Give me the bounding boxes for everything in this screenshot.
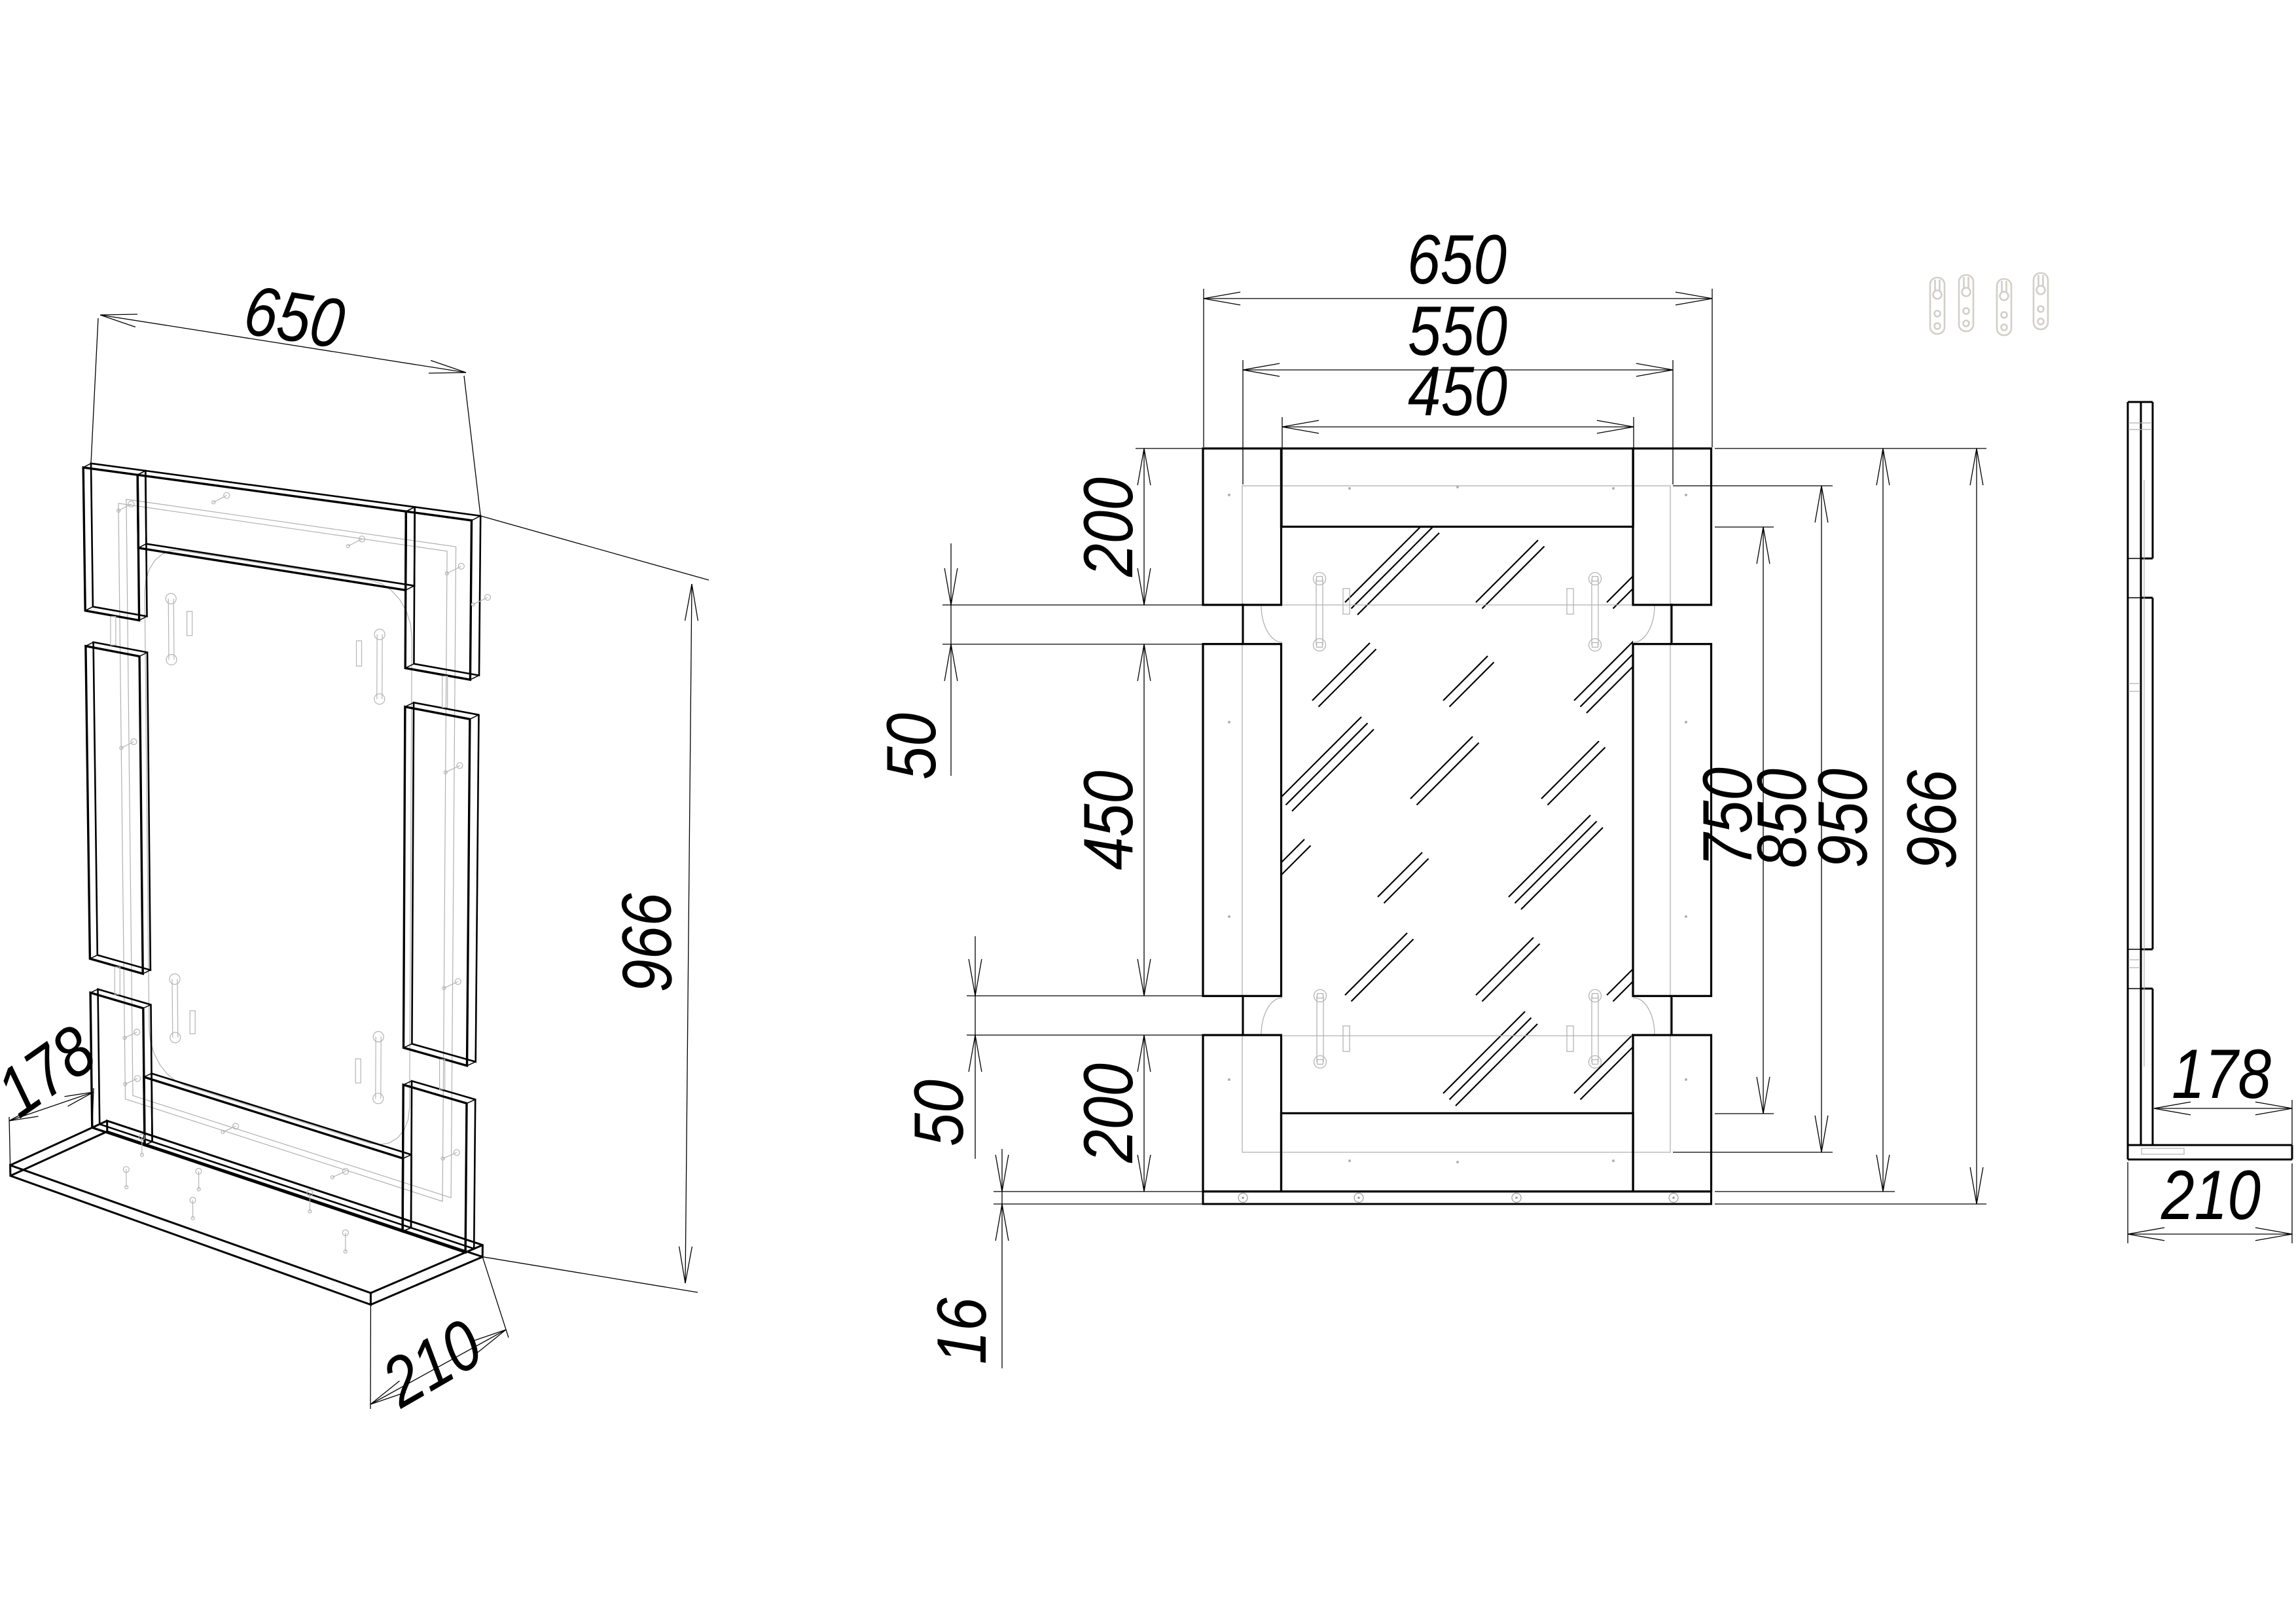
svg-text:950: 950 <box>1803 769 1882 868</box>
svg-text:178: 178 <box>2172 1034 2271 1113</box>
svg-text:450: 450 <box>1069 771 1147 870</box>
svg-text:450: 450 <box>1408 352 1507 430</box>
svg-text:200: 200 <box>1069 1063 1147 1163</box>
svg-text:966: 966 <box>1892 770 1971 869</box>
svg-text:650: 650 <box>240 270 350 363</box>
svg-text:200: 200 <box>1069 477 1147 577</box>
svg-text:50: 50 <box>899 1080 978 1146</box>
svg-text:210: 210 <box>368 1304 494 1422</box>
svg-text:16: 16 <box>922 1298 1001 1364</box>
svg-text:50: 50 <box>872 713 950 780</box>
svg-text:966: 966 <box>607 892 686 993</box>
svg-text:210: 210 <box>2161 1156 2261 1234</box>
svg-text:650: 650 <box>1407 220 1507 299</box>
